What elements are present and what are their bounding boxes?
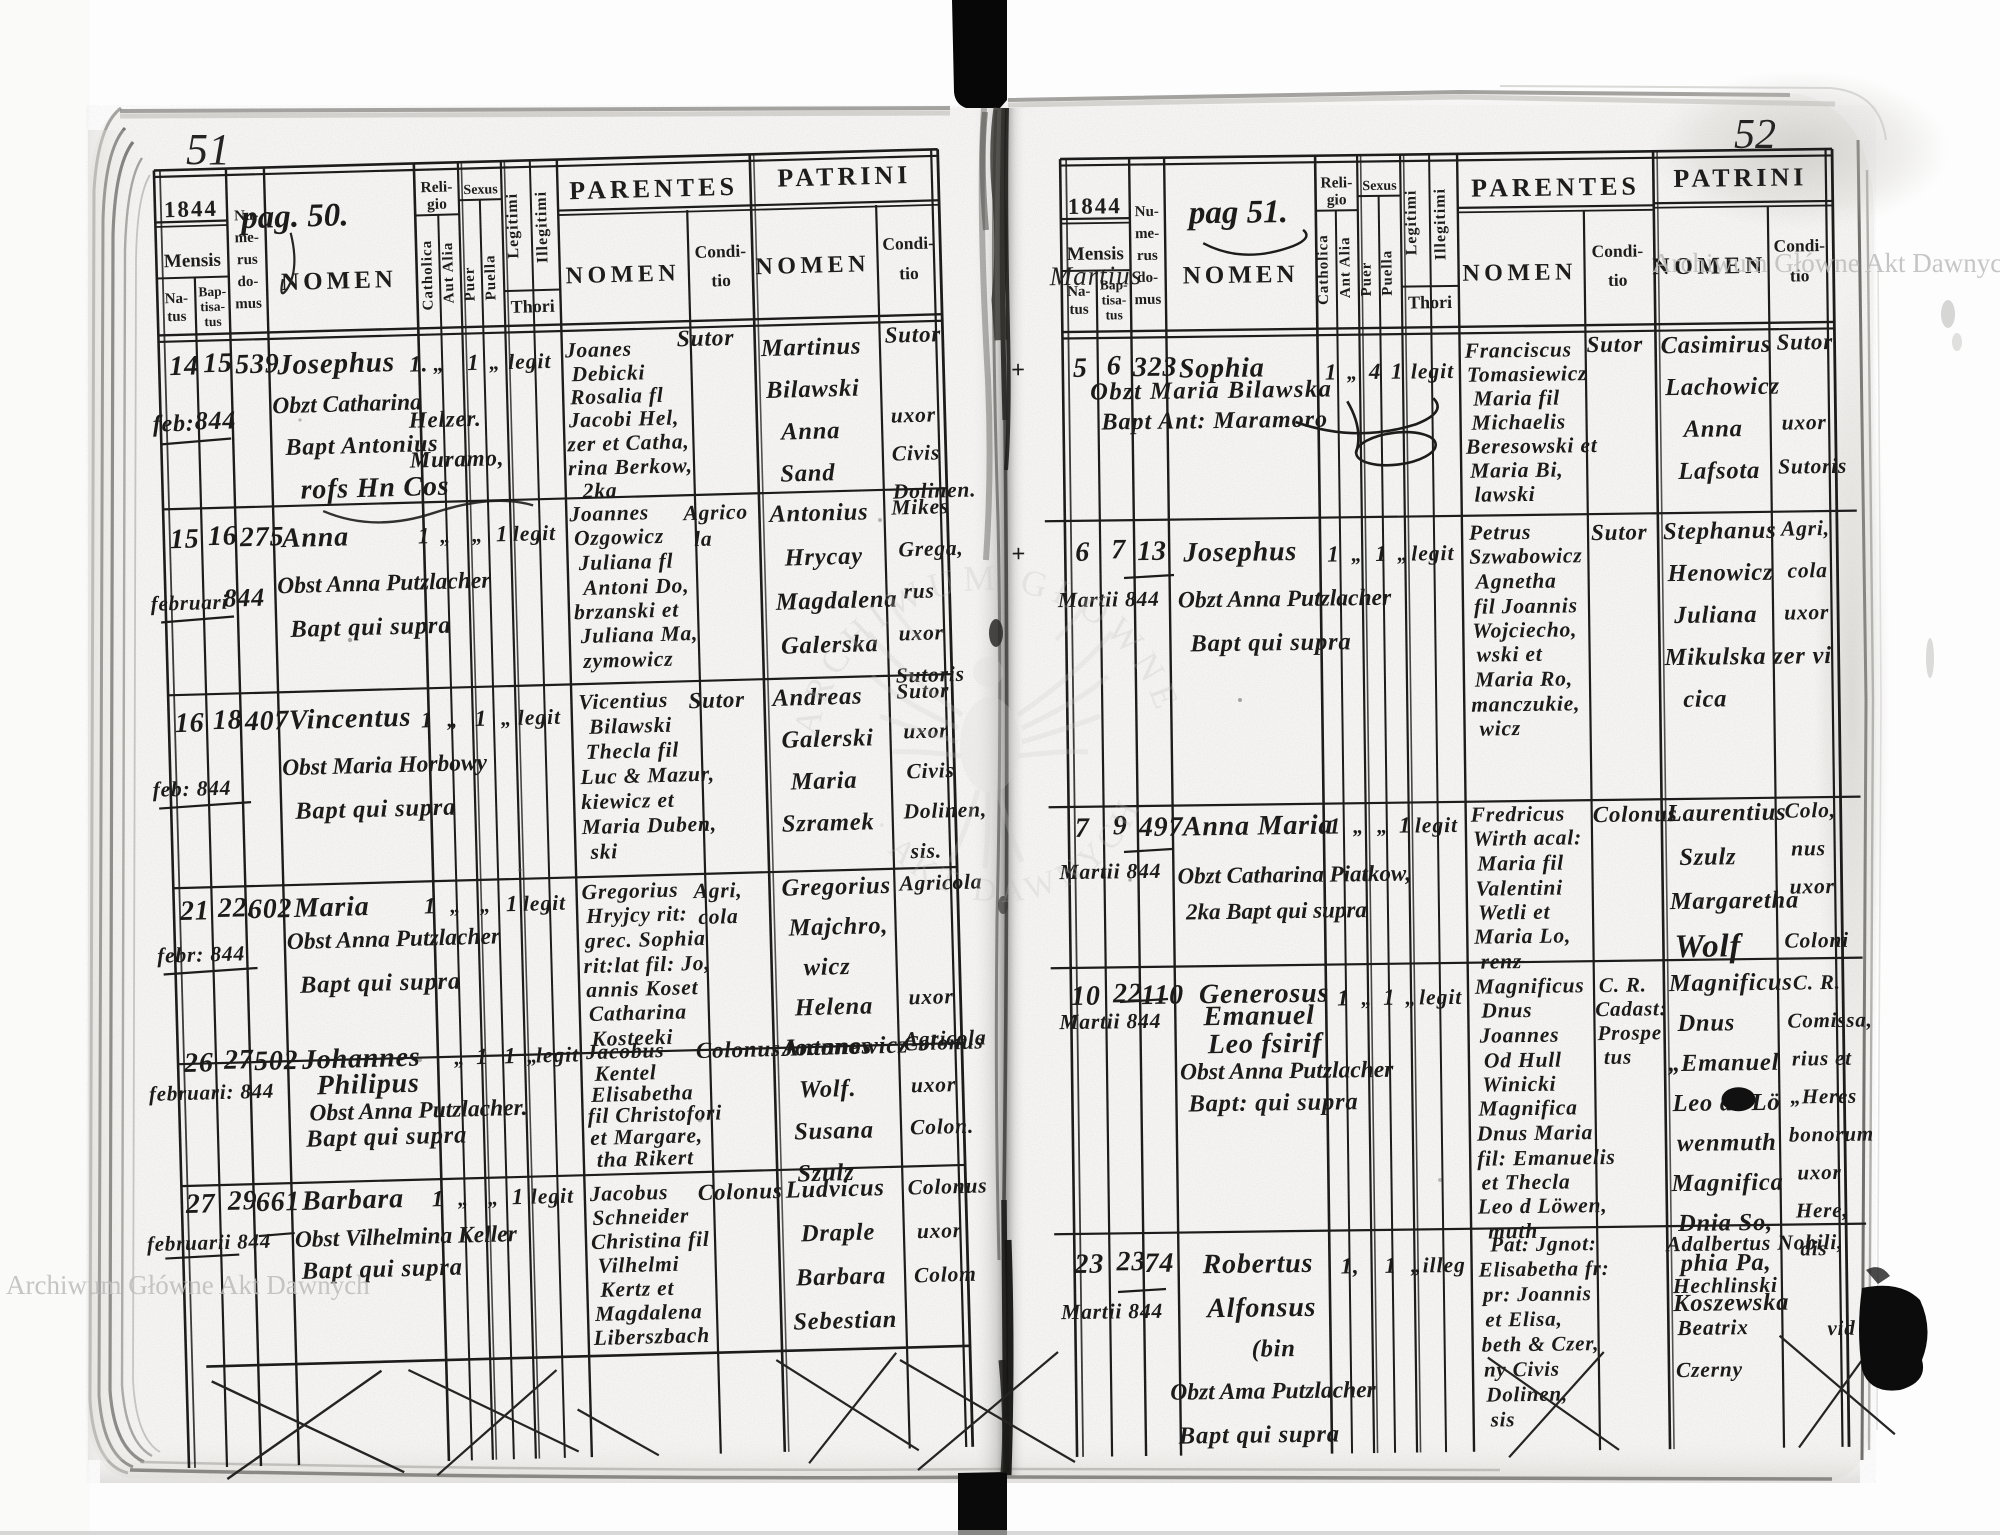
- svg-text:manczukie,: manczukie,: [1471, 691, 1580, 716]
- svg-text:23: 23: [1115, 1246, 1146, 1277]
- svg-text:rit:lat fil: Jo,: rit:lat fil: Jo,: [583, 951, 710, 978]
- svg-text:Sebestian: Sebestian: [793, 1306, 898, 1336]
- svg-text:NOMEN: NOMEN: [565, 260, 680, 289]
- svg-text:Obzt Catharina Piatkow,: Obzt Catharina Piatkow,: [1177, 861, 1411, 889]
- svg-text:tio: tio: [711, 270, 731, 291]
- svg-text:Mikulska zer vi: Mikulska zer vi: [1664, 642, 1833, 671]
- svg-text:Civis: Civis: [906, 758, 955, 783]
- svg-text:tisa-: tisa-: [200, 299, 225, 315]
- svg-text:407: 407: [243, 705, 289, 737]
- svg-text:539: 539: [235, 348, 280, 380]
- svg-text:15: 15: [203, 347, 233, 379]
- svg-text:tio: tio: [1608, 270, 1628, 290]
- svg-text:la: la: [694, 527, 713, 551]
- svg-text:februarii 844: februarii 844: [147, 1229, 272, 1256]
- svg-text:Obst Maria Horbowy: Obst Maria Horbowy: [282, 750, 488, 782]
- svg-text:497: 497: [1138, 811, 1184, 843]
- svg-text:Colonus: Colonus: [696, 1036, 782, 1063]
- svg-text:1: 1: [1325, 359, 1338, 384]
- svg-text:Wirth acal:: Wirth acal:: [1473, 825, 1582, 850]
- svg-text:Na-: Na-: [1067, 284, 1091, 300]
- svg-text:21: 21: [179, 895, 210, 927]
- svg-text:2ka: 2ka: [581, 478, 617, 503]
- svg-text:pag. 50.: pag. 50.: [238, 197, 349, 236]
- svg-text:mus: mus: [1135, 292, 1162, 308]
- svg-text:Sexus: Sexus: [1362, 179, 1397, 194]
- svg-text:rius et: rius et: [1792, 1046, 1853, 1071]
- svg-text:Helena: Helena: [793, 992, 873, 1021]
- svg-text:Thecla fil: Thecla fil: [585, 738, 679, 765]
- svg-text:Hechlinski: Hechlinski: [1672, 1273, 1778, 1298]
- svg-text:1,: 1,: [1340, 1253, 1359, 1278]
- svg-text:Na-: Na-: [165, 291, 189, 308]
- svg-text:NOMEN: NOMEN: [281, 266, 398, 296]
- svg-text:tisa-: tisa-: [1101, 292, 1126, 307]
- svg-text:Colon.: Colon.: [910, 1114, 975, 1140]
- svg-text:Bapt qui supra: Bapt qui supra: [305, 1121, 468, 1152]
- svg-text:wenmuth: wenmuth: [1677, 1129, 1777, 1157]
- svg-text:Tomasiewicz: Tomasiewicz: [1467, 361, 1588, 387]
- svg-text:Sutor: Sutor: [1586, 331, 1643, 357]
- svg-text:„: „: [480, 893, 492, 917]
- svg-text:16: 16: [207, 520, 237, 552]
- svg-text:uxor: uxor: [1784, 600, 1829, 625]
- svg-text:„: „: [1347, 360, 1359, 384]
- svg-text:Obzt Ama Putzlacher: Obzt Ama Putzlacher: [1170, 1377, 1377, 1406]
- svg-text:1: 1: [506, 891, 519, 916]
- svg-text:Mensis: Mensis: [164, 250, 222, 273]
- svg-text:Grega,: Grega,: [898, 536, 964, 562]
- svg-text:rus: rus: [1137, 248, 1158, 264]
- svg-text:Bapt: qui supra: Bapt: qui supra: [1187, 1088, 1358, 1117]
- svg-text:Sutor: Sutor: [1591, 519, 1648, 545]
- svg-text:1: 1: [421, 707, 434, 732]
- svg-text:Maria Lo,: Maria Lo,: [1473, 923, 1571, 948]
- svg-text:Majchro,: Majchro,: [787, 912, 888, 942]
- svg-text:rofs Hn Cos: rofs Hn Cos: [300, 471, 450, 506]
- svg-text:1: 1: [431, 1186, 444, 1211]
- svg-text:legit: legit: [536, 1042, 580, 1067]
- svg-text:PATRINI: PATRINI: [777, 160, 912, 193]
- svg-text:„: „: [1405, 985, 1417, 1009]
- svg-text:Josephus: Josephus: [276, 346, 395, 381]
- svg-text:Hryjcy rit:: Hryjcy rit:: [585, 901, 688, 928]
- svg-text:Barbara: Barbara: [795, 1262, 887, 1291]
- svg-text:„: „: [454, 1045, 466, 1069]
- svg-text:legit: legit: [1411, 541, 1455, 566]
- svg-text:844: 844: [194, 405, 236, 435]
- svg-text:Martius: Martius: [1048, 260, 1142, 291]
- svg-text:Puer: Puer: [462, 266, 479, 301]
- svg-text:+: +: [1011, 357, 1026, 384]
- svg-text:Martii 844: Martii 844: [1058, 1009, 1161, 1034]
- svg-text:fil: Emanuelis: fil: Emanuelis: [1477, 1145, 1616, 1171]
- svg-text:Obzt Maria Bilawska: Obzt Maria Bilawska: [1090, 376, 1333, 406]
- svg-text:6: 6: [1107, 350, 1122, 381]
- svg-text:„: „: [501, 706, 513, 730]
- svg-text:Agri,: Agri,: [691, 878, 742, 903]
- svg-text:cola: cola: [1787, 558, 1828, 583]
- svg-text:Illegitimi: Illegitimi: [1432, 188, 1450, 260]
- svg-text:Luc & Mazur,: Luc & Mazur,: [579, 762, 715, 790]
- svg-text:Joanes: Joanes: [564, 337, 633, 363]
- svg-text:uxor: uxor: [911, 1072, 957, 1097]
- svg-text:zymowicz: zymowicz: [582, 647, 674, 673]
- svg-text:Maria Ro,: Maria Ro,: [1474, 666, 1573, 691]
- svg-text:Aut Alia: Aut Alia: [440, 241, 458, 303]
- svg-text:uxor: uxor: [1790, 874, 1835, 899]
- svg-text:Bapt qui supra: Bapt qui supra: [1189, 628, 1351, 657]
- svg-text:7: 7: [1111, 534, 1126, 565]
- svg-text:Szramek: Szramek: [781, 808, 874, 837]
- svg-text:rus: rus: [237, 252, 258, 269]
- svg-text:Leo fsirif: Leo fsirif: [1207, 1028, 1325, 1061]
- svg-text:Szwabowicz: Szwabowicz: [1469, 543, 1582, 568]
- svg-text:Beresowski et: Beresowski et: [1465, 433, 1598, 459]
- svg-text:gio: gio: [1327, 191, 1347, 208]
- svg-text:legit: legit: [513, 521, 557, 546]
- svg-text:Szulz: Szulz: [1679, 843, 1736, 871]
- svg-text:Bilawski: Bilawski: [588, 713, 672, 739]
- svg-text:Sexus: Sexus: [463, 182, 498, 198]
- svg-text:Maria fil: Maria fil: [1476, 851, 1564, 876]
- svg-text:110: 110: [1141, 980, 1184, 1012]
- svg-text:Fredricus: Fredricus: [1470, 801, 1566, 826]
- svg-text:Adalbertus Nobili,: Adalbertus Nobili,: [1664, 1230, 1843, 1256]
- svg-text:„: „: [1361, 986, 1373, 1010]
- svg-text:Bap-: Bap-: [198, 284, 226, 300]
- svg-text:ski: ski: [589, 839, 618, 864]
- svg-text:Juliana Ma,: Juliana Ma,: [579, 621, 698, 648]
- svg-text:wski et: wski et: [1476, 642, 1542, 667]
- svg-text:PATRINI: PATRINI: [1673, 162, 1807, 193]
- svg-text:grec. Sophia: grec. Sophia: [584, 926, 706, 953]
- svg-text:feb: 844: feb: 844: [152, 776, 231, 802]
- svg-text:Debicki: Debicki: [570, 360, 645, 386]
- svg-text:18: 18: [212, 704, 242, 736]
- svg-text:Anna: Anna: [279, 521, 349, 554]
- svg-text:Agrico: Agrico: [681, 500, 748, 526]
- svg-text:Ludvicus: Ludvicus: [784, 1174, 885, 1204]
- svg-text:bonorum: bonorum: [1789, 1121, 1874, 1146]
- svg-text:27: 27: [223, 1044, 255, 1076]
- svg-text:Puella: Puella: [1379, 250, 1396, 296]
- svg-text:mus: mus: [235, 296, 262, 313]
- svg-text:Comissa,: Comissa,: [1787, 1007, 1872, 1032]
- svg-text:legit: legit: [1415, 813, 1459, 838]
- svg-text:Jacobus: Jacobus: [588, 1180, 668, 1206]
- svg-text:Beatrix: Beatrix: [1676, 1315, 1749, 1340]
- svg-text:Archiwum Główne Akt Dawnych: Archiwum Główne Akt Dawnych: [1652, 248, 2000, 278]
- svg-text:nus: nus: [1791, 836, 1826, 860]
- svg-text:Prospe: Prospe: [1596, 1020, 1662, 1045]
- svg-text:10: 10: [1071, 981, 1101, 1012]
- svg-text:Anna: Anna: [1682, 415, 1743, 443]
- svg-text:(bin: (bin: [1252, 1335, 1296, 1363]
- svg-text:1: 1: [1383, 985, 1396, 1010]
- svg-text:Nu-: Nu-: [1135, 204, 1159, 220]
- svg-text:Od Hull: Od Hull: [1484, 1048, 1562, 1073]
- svg-text:Helzer.: Helzer.: [407, 406, 481, 433]
- svg-text:Condi-: Condi-: [882, 232, 934, 253]
- svg-text:„: „: [433, 352, 445, 376]
- svg-text:Bapt qui supra: Bapt qui supra: [299, 967, 462, 998]
- svg-text:„: „: [472, 523, 484, 547]
- svg-text:Muramo,: Muramo,: [409, 445, 505, 473]
- svg-text:legit: legit: [518, 705, 562, 730]
- svg-text:Coloni: Coloni: [1784, 928, 1849, 953]
- svg-text:1: 1: [1337, 985, 1350, 1010]
- svg-text:Magnifica: Magnifica: [1477, 1095, 1577, 1120]
- svg-text:legit: legit: [1419, 985, 1463, 1010]
- svg-text:15: 15: [169, 523, 199, 555]
- svg-text:do-: do-: [237, 274, 258, 291]
- svg-text:13: 13: [1137, 536, 1167, 567]
- svg-text:uxor: uxor: [890, 402, 936, 427]
- svg-text:Draple: Draple: [800, 1218, 876, 1247]
- svg-text:lawski: lawski: [1474, 482, 1535, 507]
- svg-text:„: „: [450, 893, 462, 917]
- svg-text:Bap-: Bap-: [1100, 277, 1128, 292]
- svg-text:Gregorius: Gregorius: [581, 878, 678, 905]
- svg-text:6: 6: [1075, 537, 1090, 568]
- svg-text:zer et Catha,: zer et Catha,: [566, 429, 690, 456]
- svg-text:sis: sis: [1489, 1407, 1515, 1431]
- svg-text:NOMEN: NOMEN: [755, 251, 870, 280]
- svg-text:Agnetha: Agnetha: [1474, 569, 1557, 594]
- svg-text:Hrycay: Hrycay: [783, 542, 863, 571]
- svg-text:Gregorius: Gregorius: [781, 872, 891, 902]
- svg-text:Archiwum Główne Akt Dawnych: Archiwum Główne Akt Dawnych: [6, 1270, 370, 1300]
- svg-text:Cadast:: Cadast:: [1595, 996, 1667, 1021]
- svg-text:844: 844: [223, 583, 265, 613]
- svg-text:Schneider: Schneider: [592, 1203, 689, 1230]
- svg-text:Colonus: Colonus: [907, 1173, 987, 1199]
- svg-text:Bapt qui supra: Bapt qui supra: [289, 612, 452, 643]
- svg-text:Sutor: Sutor: [1776, 329, 1833, 355]
- svg-text:52: 52: [1734, 112, 1776, 158]
- svg-text:Franciscus: Franciscus: [1463, 337, 1571, 362]
- svg-text:661: 661: [255, 1186, 300, 1218]
- svg-text:„: „: [458, 1186, 470, 1210]
- svg-text:gio: gio: [427, 196, 448, 214]
- svg-text:Mikes: Mikes: [890, 494, 949, 520]
- svg-text:275: 275: [238, 521, 284, 553]
- svg-text:Legitimi: Legitimi: [1403, 189, 1421, 255]
- svg-text:5: 5: [1073, 353, 1088, 384]
- svg-text:annis Koset: annis Koset: [586, 975, 699, 1002]
- svg-text:Kertz et: Kertz et: [599, 1276, 675, 1302]
- svg-text:Jacobi Hel,: Jacobi Hel,: [567, 405, 679, 432]
- svg-text:Antonius: Antonius: [767, 498, 869, 528]
- svg-text:Petrus: Petrus: [1468, 520, 1531, 545]
- svg-text:Condi-: Condi-: [1591, 240, 1643, 261]
- svg-text:legit: legit: [530, 1184, 574, 1209]
- svg-text:27: 27: [184, 1188, 216, 1220]
- svg-text:Casimirus: Casimirus: [1660, 331, 1771, 359]
- svg-text:1: 1: [1375, 541, 1388, 566]
- svg-text:Liberszbach: Liberszbach: [592, 1323, 710, 1350]
- svg-text:tus: tus: [1604, 1045, 1632, 1069]
- svg-text:Condi-: Condi-: [694, 241, 746, 262]
- svg-text:cica: cica: [1683, 685, 1727, 713]
- svg-text:„: „: [447, 707, 459, 731]
- svg-text:tio: tio: [899, 263, 919, 284]
- svg-text:Maria: Maria: [293, 891, 370, 924]
- svg-text:februari: 844: februari: 844: [149, 1079, 275, 1106]
- svg-text:Catharina: Catharina: [589, 999, 688, 1026]
- svg-text:Agri,: Agri,: [1779, 516, 1830, 541]
- svg-text:1: 1: [418, 523, 431, 548]
- svg-text:et Elisa,: et Elisa,: [1485, 1307, 1563, 1332]
- svg-text:Laurentius: Laurentius: [1666, 799, 1787, 828]
- svg-text:„: „: [1353, 814, 1365, 838]
- svg-text:1844: 1844: [1068, 193, 1122, 219]
- svg-text:Obst Anna Putzlacher: Obst Anna Putzlacher: [1180, 1057, 1394, 1086]
- svg-text:Lachowicz: Lachowicz: [1664, 373, 1780, 402]
- svg-text:uxor: uxor: [917, 1218, 963, 1243]
- svg-text:Legitimi: Legitimi: [504, 193, 523, 259]
- svg-text:„: „: [1410, 1253, 1422, 1277]
- svg-text:tha Rikert: tha Rikert: [597, 1145, 695, 1172]
- svg-text:Ant Alia: Ant Alia: [1337, 236, 1354, 298]
- svg-text:1: 1: [504, 1043, 517, 1068]
- svg-text:febr: 844: febr: 844: [157, 941, 245, 967]
- svg-text:1: 1: [1391, 359, 1404, 384]
- svg-text:Philipus: Philipus: [315, 1068, 420, 1102]
- svg-text:tus: tus: [204, 314, 222, 329]
- svg-text:uxor: uxor: [1797, 1160, 1841, 1185]
- svg-text:Juliana fl: Juliana fl: [577, 549, 673, 576]
- svg-text:uxor: uxor: [908, 984, 954, 1009]
- svg-text:legit: legit: [508, 349, 552, 374]
- svg-text:Obzt Catharina: Obzt Catharina: [272, 389, 422, 419]
- svg-text:1844: 1844: [164, 196, 219, 222]
- svg-text:Magnifica: Magnifica: [1670, 1169, 1783, 1197]
- svg-text:Illegitimi: Illegitimi: [533, 191, 552, 264]
- svg-text:Joannes: Joannes: [568, 500, 649, 526]
- svg-text:tus: tus: [167, 309, 187, 326]
- svg-text:Christina fil: Christina fil: [591, 1227, 710, 1254]
- svg-text:1: 1: [511, 1184, 524, 1209]
- svg-text:Maria: Maria: [789, 767, 857, 796]
- svg-text:ny Civis: ny Civis: [1484, 1357, 1560, 1382]
- svg-text:14: 14: [169, 350, 199, 382]
- svg-text:1: 1: [1329, 813, 1342, 838]
- svg-text:Margaretha: Margaretha: [1669, 886, 1800, 915]
- svg-text:23: 23: [1073, 1249, 1104, 1280]
- svg-text:beth & Czer,: beth & Czer,: [1481, 1331, 1599, 1357]
- svg-text:Antoni Do,: Antoni Do,: [581, 573, 690, 600]
- svg-text:renz: renz: [1480, 949, 1522, 974]
- svg-text:22: 22: [1112, 978, 1143, 1009]
- svg-text:Bapt Ant: Maramoro: Bapt Ant: Maramoro: [1100, 407, 1328, 436]
- svg-text:Sand: Sand: [780, 459, 836, 487]
- svg-text:Ozgowicz: Ozgowicz: [574, 524, 665, 550]
- svg-text:C. R.: C. R.: [1599, 972, 1647, 997]
- svg-text:Dnus: Dnus: [1676, 1009, 1735, 1037]
- svg-text:74: 74: [1144, 1248, 1174, 1279]
- svg-text:Magnificus: Magnificus: [1474, 973, 1585, 998]
- svg-text:1: 1: [476, 1044, 489, 1069]
- svg-text:Vincentus: Vincentus: [288, 702, 411, 736]
- svg-text:Alfonsus: Alfonsus: [1205, 1292, 1317, 1324]
- svg-text:4: 4: [1368, 359, 1382, 384]
- svg-text:1: 1: [1399, 813, 1412, 838]
- svg-text:Valentini: Valentini: [1476, 876, 1564, 901]
- svg-text:„: „: [489, 350, 501, 374]
- svg-text:Vicentius: Vicentius: [578, 688, 668, 714]
- svg-text:Colonus: Colonus: [903, 1029, 983, 1055]
- svg-text:Puer: Puer: [1358, 262, 1374, 297]
- svg-text:pag 51.: pag 51.: [1186, 194, 1288, 231]
- svg-text:wicz: wicz: [1479, 716, 1521, 741]
- svg-text:Stephanus: Stephanus: [1663, 517, 1777, 545]
- svg-text:legit: legit: [523, 891, 567, 916]
- svg-text:Thori: Thori: [1408, 292, 1452, 313]
- svg-text:„: „: [1377, 814, 1389, 838]
- svg-text:me-: me-: [1135, 226, 1159, 242]
- svg-text:Here,: Here,: [1795, 1198, 1849, 1223]
- svg-text:Winicki: Winicki: [1482, 1072, 1556, 1097]
- svg-text:Sutor: Sutor: [676, 325, 734, 353]
- svg-text:2ka Bapt qui supra: 2ka Bapt qui supra: [1185, 897, 1367, 924]
- svg-text:Magdalena: Magdalena: [594, 1299, 703, 1326]
- svg-text:Czerny: Czerny: [1676, 1357, 1743, 1382]
- svg-text:Martii 844: Martii 844: [1060, 1299, 1163, 1324]
- svg-text:Maria Bi,: Maria Bi,: [1469, 457, 1564, 482]
- svg-text:Vilhelmi: Vilhelmi: [597, 1252, 679, 1278]
- svg-text:1.: 1.: [409, 351, 429, 377]
- svg-text:fil Joannis: fil Joannis: [1474, 593, 1578, 618]
- svg-text:Leo d Löwen,: Leo d Löwen,: [1477, 1193, 1608, 1219]
- svg-text:Thori: Thori: [510, 296, 555, 317]
- svg-text:602: 602: [248, 893, 293, 925]
- svg-text:Reli-: Reli-: [1320, 174, 1352, 191]
- svg-text:16: 16: [174, 707, 204, 739]
- svg-text:„Emanuel: „Emanuel: [1668, 1049, 1780, 1077]
- svg-text:et Thecla: et Thecla: [1481, 1169, 1570, 1194]
- svg-text:Sutoris: Sutoris: [1778, 454, 1847, 479]
- svg-text:Maria Duben,: Maria Duben,: [581, 812, 718, 840]
- svg-text:Sutor: Sutor: [688, 687, 745, 714]
- svg-text:PARENTES: PARENTES: [1471, 171, 1640, 202]
- svg-text:februari: februari: [150, 590, 228, 616]
- svg-text:rina Berkow,: rina Berkow,: [568, 453, 693, 480]
- svg-text:Colonus: Colonus: [1593, 801, 1678, 827]
- svg-text:Joannes: Joannes: [781, 1032, 873, 1061]
- svg-text:Wetli et: Wetli et: [1478, 900, 1551, 925]
- svg-text:502: 502: [254, 1045, 299, 1077]
- svg-text:Wojciecho,: Wojciecho,: [1472, 617, 1577, 642]
- svg-text:Pat: Jgnot:: Pat: Jgnot:: [1489, 1231, 1597, 1256]
- svg-text:Susana: Susana: [794, 1116, 874, 1145]
- svg-text:Magnificus: Magnificus: [1668, 969, 1793, 998]
- svg-text:Joannes: Joannes: [1478, 1023, 1559, 1048]
- svg-text:Barbara: Barbara: [300, 1183, 404, 1217]
- svg-text:Colonus: Colonus: [697, 1178, 783, 1205]
- svg-text:„: „: [1397, 542, 1409, 566]
- svg-text:Obzt Anna Putzlacher: Obzt Anna Putzlacher: [1178, 585, 1392, 614]
- svg-text:Anna Maria: Anna Maria: [1181, 810, 1334, 843]
- svg-text:Wolf: Wolf: [1674, 928, 1743, 965]
- svg-text:Colom: Colom: [914, 1262, 977, 1288]
- svg-text:1: 1: [467, 350, 480, 375]
- svg-text:26: 26: [183, 1047, 214, 1079]
- svg-text:Catholica: Catholica: [1315, 234, 1332, 305]
- svg-text:Juliana: Juliana: [1673, 601, 1758, 629]
- svg-text:1: 1: [496, 521, 509, 546]
